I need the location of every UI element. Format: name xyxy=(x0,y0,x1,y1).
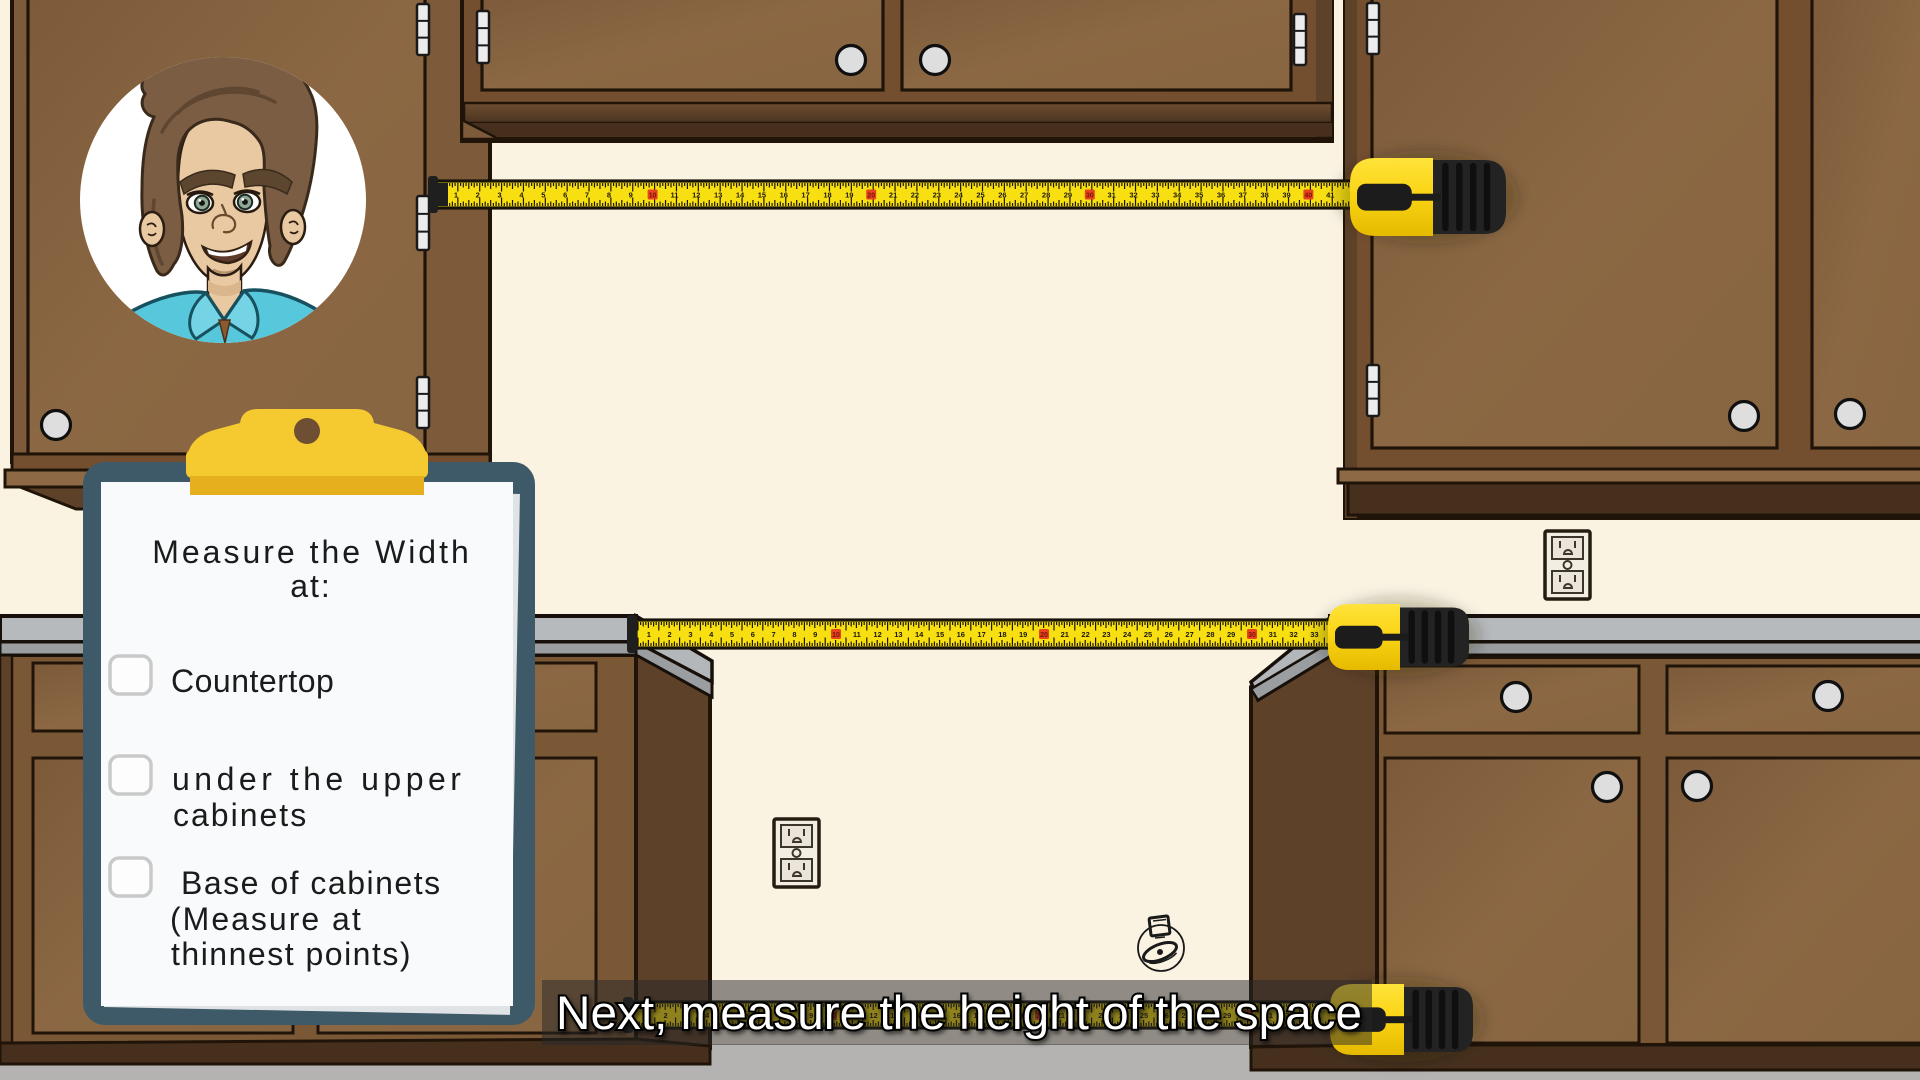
svg-text:12: 12 xyxy=(692,191,700,200)
svg-text:7: 7 xyxy=(772,630,776,639)
svg-text:Measure the Width: Measure the Width xyxy=(152,534,472,570)
svg-text:21: 21 xyxy=(1061,630,1069,639)
svg-text:21: 21 xyxy=(889,191,897,200)
svg-text:34: 34 xyxy=(1173,191,1182,200)
svg-text:2: 2 xyxy=(476,191,480,200)
svg-text:6: 6 xyxy=(563,191,567,200)
svg-text:26: 26 xyxy=(1165,630,1173,639)
svg-text:8: 8 xyxy=(792,630,796,639)
svg-text:32: 32 xyxy=(1129,191,1137,200)
svg-text:16: 16 xyxy=(780,191,788,200)
svg-text:6: 6 xyxy=(751,630,755,639)
svg-text:1: 1 xyxy=(454,191,458,200)
svg-text:9: 9 xyxy=(629,191,633,200)
svg-text:(Measure at: (Measure at xyxy=(170,901,363,937)
svg-text:18: 18 xyxy=(823,191,831,200)
svg-text:11: 11 xyxy=(671,191,679,200)
svg-text:27: 27 xyxy=(1020,191,1028,200)
svg-text:16: 16 xyxy=(957,630,965,639)
svg-text:20: 20 xyxy=(867,192,875,199)
svg-text:37: 37 xyxy=(1239,191,1247,200)
svg-text:18: 18 xyxy=(998,630,1006,639)
svg-text:32: 32 xyxy=(1289,630,1297,639)
svg-text:22: 22 xyxy=(1081,630,1089,639)
svg-text:5: 5 xyxy=(541,191,545,200)
svg-text:12: 12 xyxy=(873,630,881,639)
svg-text:35: 35 xyxy=(1195,191,1203,200)
svg-text:14: 14 xyxy=(736,191,745,200)
svg-text:10: 10 xyxy=(649,192,657,199)
svg-text:19: 19 xyxy=(1019,630,1027,639)
svg-text:Base of cabinets: Base of cabinets xyxy=(181,865,442,901)
svg-text:22: 22 xyxy=(911,191,919,200)
svg-text:5: 5 xyxy=(730,630,734,639)
svg-text:24: 24 xyxy=(1123,630,1132,639)
svg-text:3: 3 xyxy=(688,630,692,639)
svg-text:14: 14 xyxy=(915,630,924,639)
svg-text:28: 28 xyxy=(1206,630,1214,639)
svg-text:13: 13 xyxy=(714,191,722,200)
svg-text:19: 19 xyxy=(845,191,853,200)
svg-text:29: 29 xyxy=(1064,191,1072,200)
svg-text:29: 29 xyxy=(1227,630,1235,639)
svg-text:11: 11 xyxy=(853,630,861,639)
svg-text:26: 26 xyxy=(998,191,1006,200)
svg-text:7: 7 xyxy=(585,191,589,200)
svg-text:2: 2 xyxy=(668,630,672,639)
svg-text:30: 30 xyxy=(1086,192,1094,199)
svg-text:38: 38 xyxy=(1261,191,1269,200)
svg-text:cabinets: cabinets xyxy=(173,797,308,833)
svg-text:27: 27 xyxy=(1185,630,1193,639)
svg-text:8: 8 xyxy=(607,191,611,200)
svg-text:25: 25 xyxy=(976,191,984,200)
svg-text:at:: at: xyxy=(290,568,332,604)
svg-text:15: 15 xyxy=(758,191,766,200)
svg-text:23: 23 xyxy=(1102,630,1110,639)
svg-text:33: 33 xyxy=(1151,191,1159,200)
svg-text:24: 24 xyxy=(954,191,963,200)
svg-text:17: 17 xyxy=(977,630,985,639)
svg-text:23: 23 xyxy=(933,191,941,200)
svg-text:17: 17 xyxy=(801,191,809,200)
svg-text:10: 10 xyxy=(832,632,840,639)
svg-text:9: 9 xyxy=(813,630,817,639)
svg-text:13: 13 xyxy=(894,630,902,639)
svg-text:39: 39 xyxy=(1282,191,1290,200)
svg-text:31: 31 xyxy=(1108,191,1116,200)
svg-text:28: 28 xyxy=(1042,191,1050,200)
svg-text:thinnest points): thinnest points) xyxy=(171,936,412,972)
svg-text:15: 15 xyxy=(936,630,944,639)
svg-text:1: 1 xyxy=(647,630,651,639)
svg-text:Next, measure the height of th: Next, measure the height of the space xyxy=(556,986,1362,1039)
svg-text:25: 25 xyxy=(1144,630,1152,639)
svg-text:31: 31 xyxy=(1269,630,1277,639)
svg-text:30: 30 xyxy=(1248,632,1256,639)
svg-text:40: 40 xyxy=(1305,192,1313,199)
svg-text:41: 41 xyxy=(1326,191,1334,200)
svg-text:3: 3 xyxy=(498,191,502,200)
svg-text:under the upper: under the upper xyxy=(172,761,465,797)
svg-text:20: 20 xyxy=(1040,632,1048,639)
svg-text:36: 36 xyxy=(1217,191,1225,200)
svg-text:Countertop: Countertop xyxy=(171,663,334,699)
